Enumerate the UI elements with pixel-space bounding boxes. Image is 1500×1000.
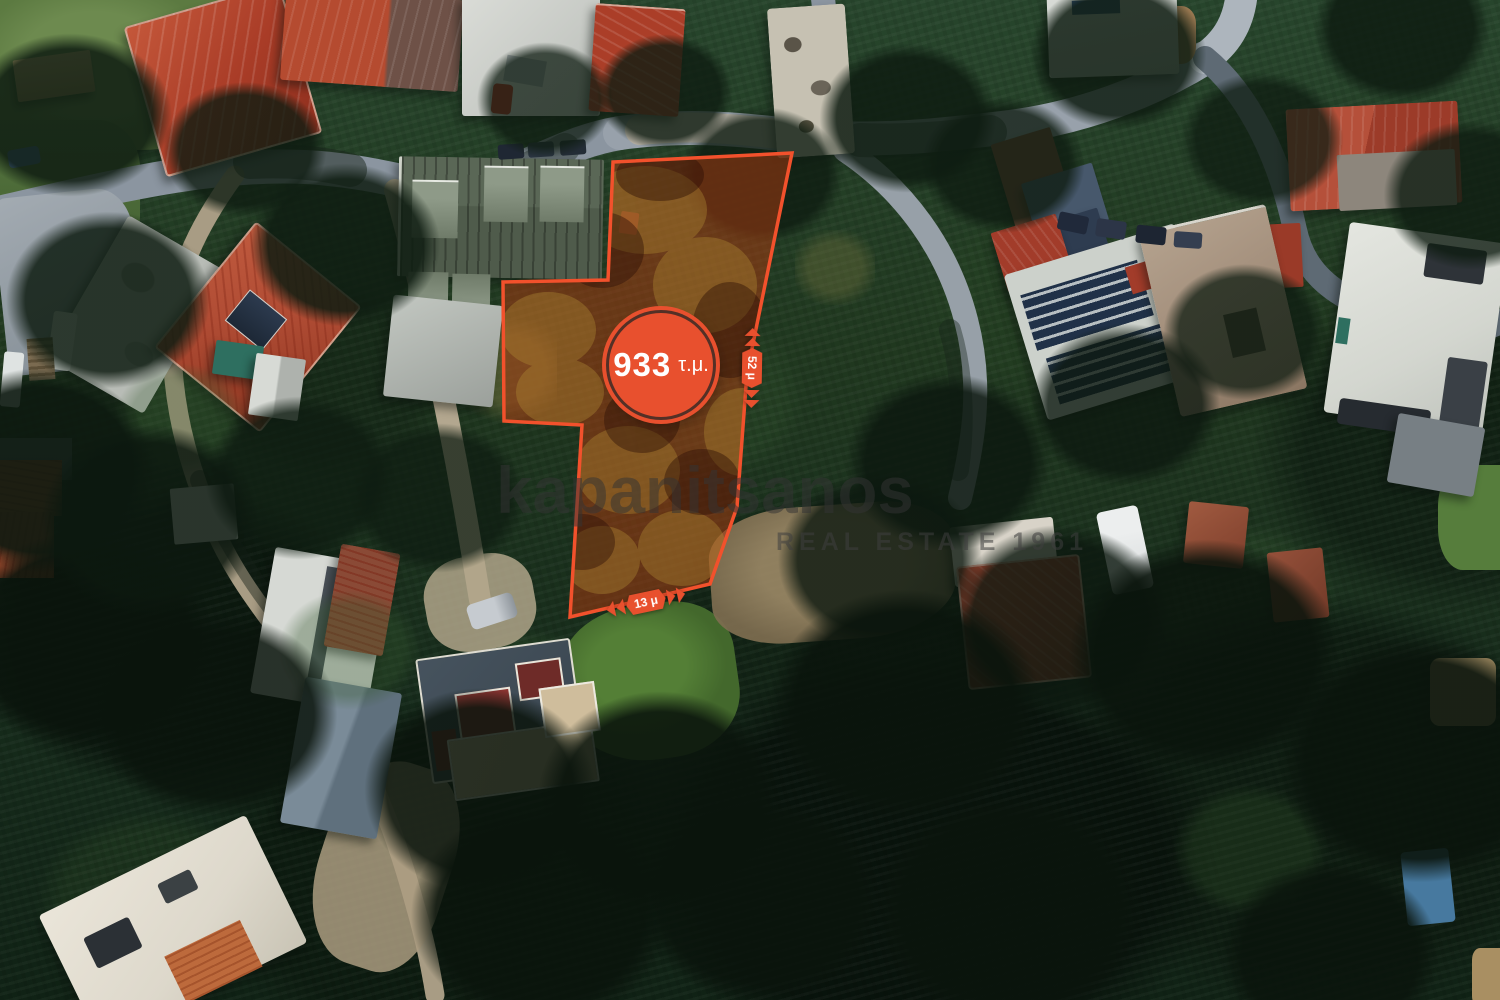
satellite-map-canvas: kapanitsanos REAL ESTATE 1961 933 τ.μ. 5…: [0, 0, 1500, 1000]
dimension-arrow-icon: [743, 390, 759, 398]
plot-side-dimension-badge: 52 μ: [741, 335, 762, 401]
plot-area-unit: τ.μ.: [678, 354, 709, 377]
plot-side-dimension-label: 52 μ: [742, 348, 763, 388]
plot-area-badge: 933 τ.μ.: [606, 310, 716, 420]
dimension-arrow-icon: [743, 400, 759, 408]
dimension-arrow-icon: [745, 328, 761, 336]
watermark-brand: kapanitsanos: [496, 452, 914, 528]
dimension-arrow-icon: [744, 338, 760, 346]
plot-area-value: 933: [613, 346, 671, 384]
dimension-arrow-icon: [615, 599, 626, 616]
watermark-tagline: REAL ESTATE 1961: [776, 528, 1088, 557]
